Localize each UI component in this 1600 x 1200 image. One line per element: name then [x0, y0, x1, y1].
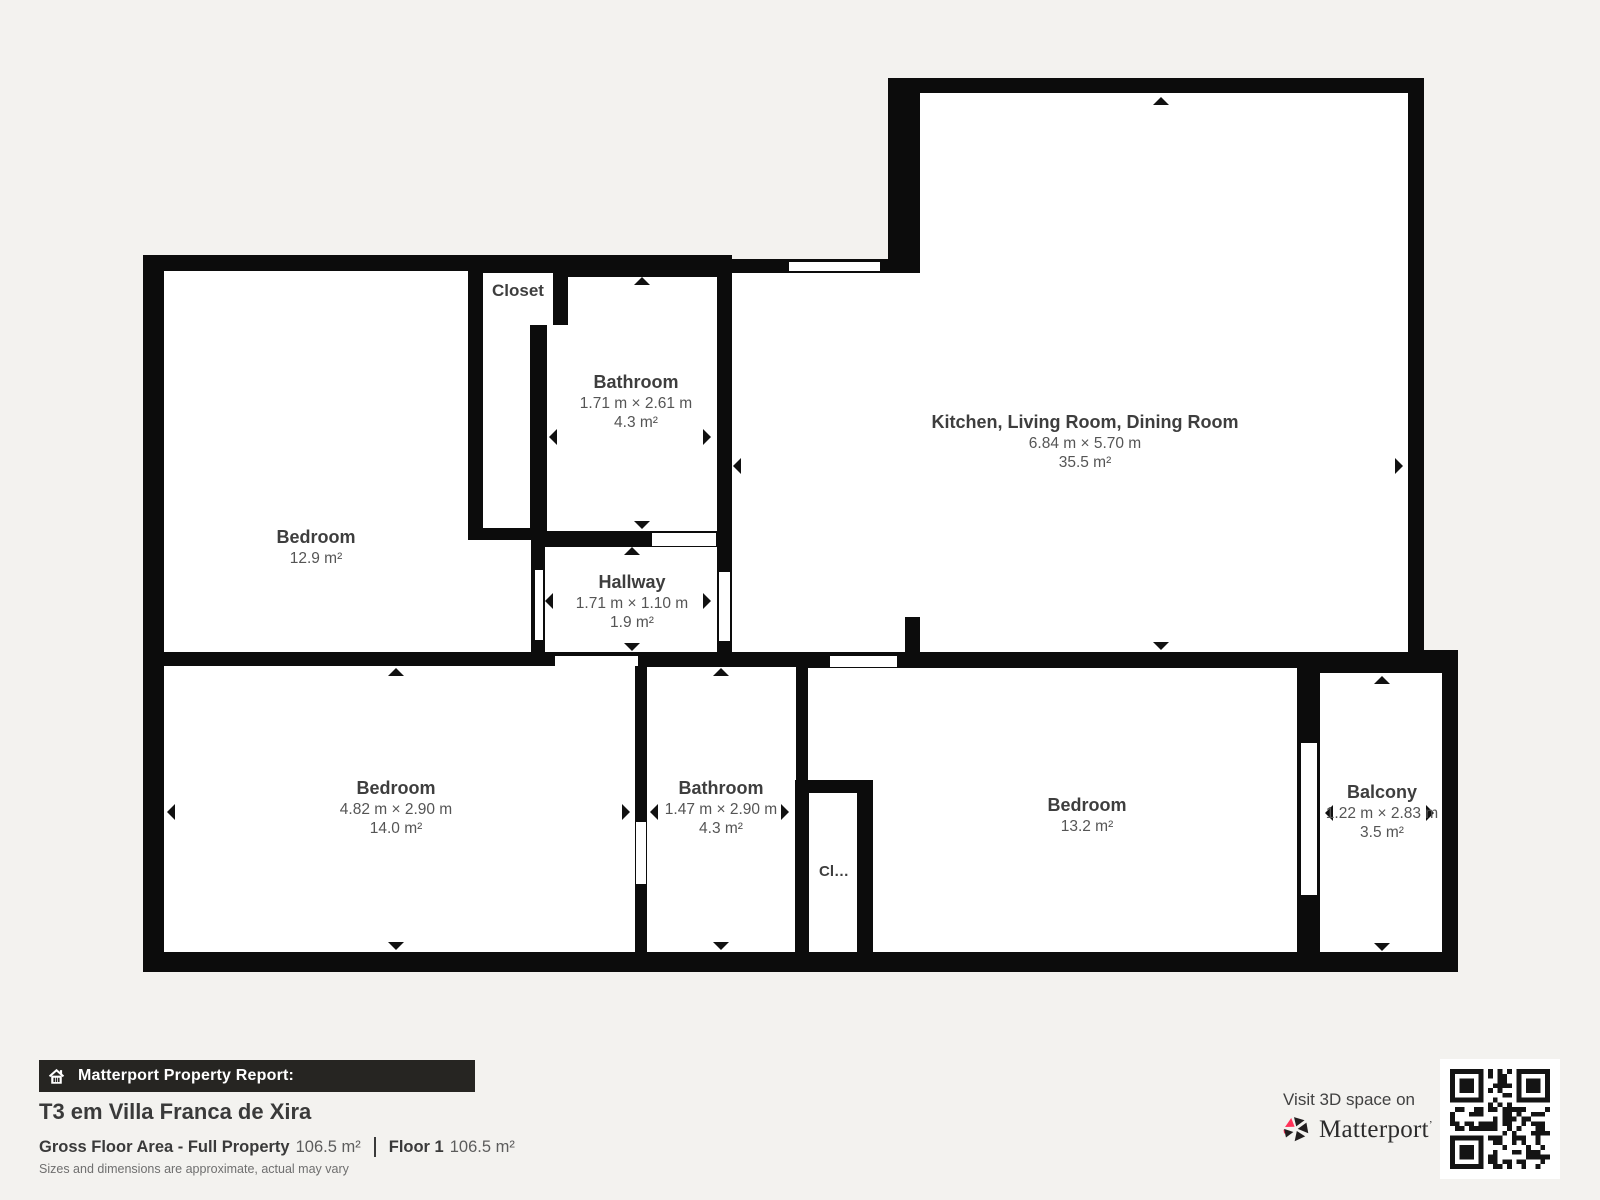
room-label-closet: Closet	[492, 279, 544, 302]
room-label-bedroom-bottomleft: Bedroom 4.82 m × 2.90 m 14.0 m²	[340, 777, 452, 838]
property-title: T3 em Villa Franca de Xira	[39, 1100, 311, 1124]
floor-plan: Bedroom 12.9 m² Closet Bathroom 1.71 m ×…	[0, 0, 1600, 1000]
house-icon	[48, 1068, 65, 1085]
door-arrow-down-icon	[1153, 642, 1169, 650]
room-label-closet-bottom: Cl…	[819, 860, 849, 883]
door-arrow-right-icon	[781, 804, 789, 820]
window-kitchen-top-wall	[789, 262, 880, 271]
room-label-bathroom-bottom: Bathroom 1.47 m × 2.90 m 4.3 m²	[665, 777, 777, 838]
door-arrow-left-icon	[549, 429, 557, 445]
door-arrow-down-icon	[1374, 943, 1390, 951]
door-opening-hallway-right	[719, 572, 730, 641]
door-opening-bathroom-bottom	[636, 822, 646, 884]
trademark-tick: ʼ	[1429, 1119, 1433, 1131]
door-opening-bathroom-top	[652, 533, 716, 546]
room-closet-lower-floor	[483, 325, 530, 528]
door-arrow-down-icon	[713, 942, 729, 950]
room-label-bedroom-topleft: Bedroom 12.9 m²	[276, 526, 355, 568]
door-arrow-down-icon	[634, 521, 650, 529]
room-bedroom-topleft-alcove-floor	[468, 540, 531, 652]
door-arrow-up-icon	[1153, 97, 1169, 105]
matterport-brand: Matterportʼ	[1281, 1114, 1433, 1145]
door-arrow-left-icon	[167, 804, 175, 820]
door-arrow-left-icon	[733, 458, 741, 474]
matterport-wordmark: Matterportʼ	[1319, 1116, 1433, 1144]
stats-divider	[374, 1137, 376, 1157]
door-arrow-right-icon	[1395, 458, 1403, 474]
door-arrow-up-icon	[1374, 676, 1390, 684]
gross-area-label: Gross Floor Area - Full Property	[39, 1136, 290, 1158]
disclaimer-text: Sizes and dimensions are approximate, ac…	[39, 1162, 349, 1176]
door-opening-hallway-left	[535, 570, 543, 640]
window-bedroom-balcony	[1301, 743, 1317, 895]
room-bedroom-topleft-floor	[164, 271, 468, 652]
report-header-bar: Matterport Property Report:	[39, 1060, 475, 1092]
door-arrow-right-icon	[622, 804, 630, 820]
room-label-bedroom-bottomright: Bedroom 13.2 m²	[1047, 794, 1126, 836]
room-label-bathroom-top: Bathroom 1.71 m × 2.61 m 4.3 m²	[580, 371, 692, 432]
qr-code-container	[1440, 1059, 1560, 1179]
room-label-hallway: Hallway 1.71 m × 1.10 m 1.9 m²	[576, 571, 688, 632]
wall-stub-kitchen	[905, 617, 920, 652]
door-arrow-down-icon	[624, 643, 640, 651]
door-arrow-right-icon	[703, 429, 711, 445]
door-arrow-up-icon	[388, 668, 404, 676]
gross-area-value: 106.5 m²	[296, 1136, 361, 1158]
door-arrow-up-icon	[624, 547, 640, 555]
matterport-floorplan-report: Bedroom 12.9 m² Closet Bathroom 1.71 m ×…	[0, 0, 1600, 1200]
report-bar-label: Matterport Property Report:	[78, 1067, 294, 1085]
area-stats: Gross Floor Area - Full Property 106.5 m…	[39, 1136, 515, 1158]
floor-label: Floor 1	[389, 1136, 444, 1158]
visit-3d-text: Visit 3D space on	[1283, 1090, 1415, 1110]
door-opening-bedroom-bottomright	[830, 656, 897, 667]
qr-code	[1450, 1069, 1550, 1169]
door-arrow-down-icon	[388, 942, 404, 950]
room-kitchen-floor	[920, 93, 1408, 652]
door-arrow-up-icon	[713, 668, 729, 676]
door-opening-hallway-bottom	[555, 656, 638, 666]
door-arrow-up-icon	[634, 277, 650, 285]
door-arrow-left-icon	[545, 593, 553, 609]
matterport-pinwheel-icon	[1281, 1114, 1312, 1145]
room-label-balcony: Balcony 1.22 m × 2.83 m 3.5 m²	[1326, 781, 1438, 842]
room-label-kitchen-living-dining: Kitchen, Living Room, Dining Room 6.84 m…	[932, 411, 1239, 472]
room-kitchen-extension-floor	[732, 273, 920, 652]
floor-area-value: 106.5 m²	[450, 1136, 515, 1158]
door-arrow-left-icon	[650, 804, 658, 820]
door-arrow-right-icon	[703, 593, 711, 609]
